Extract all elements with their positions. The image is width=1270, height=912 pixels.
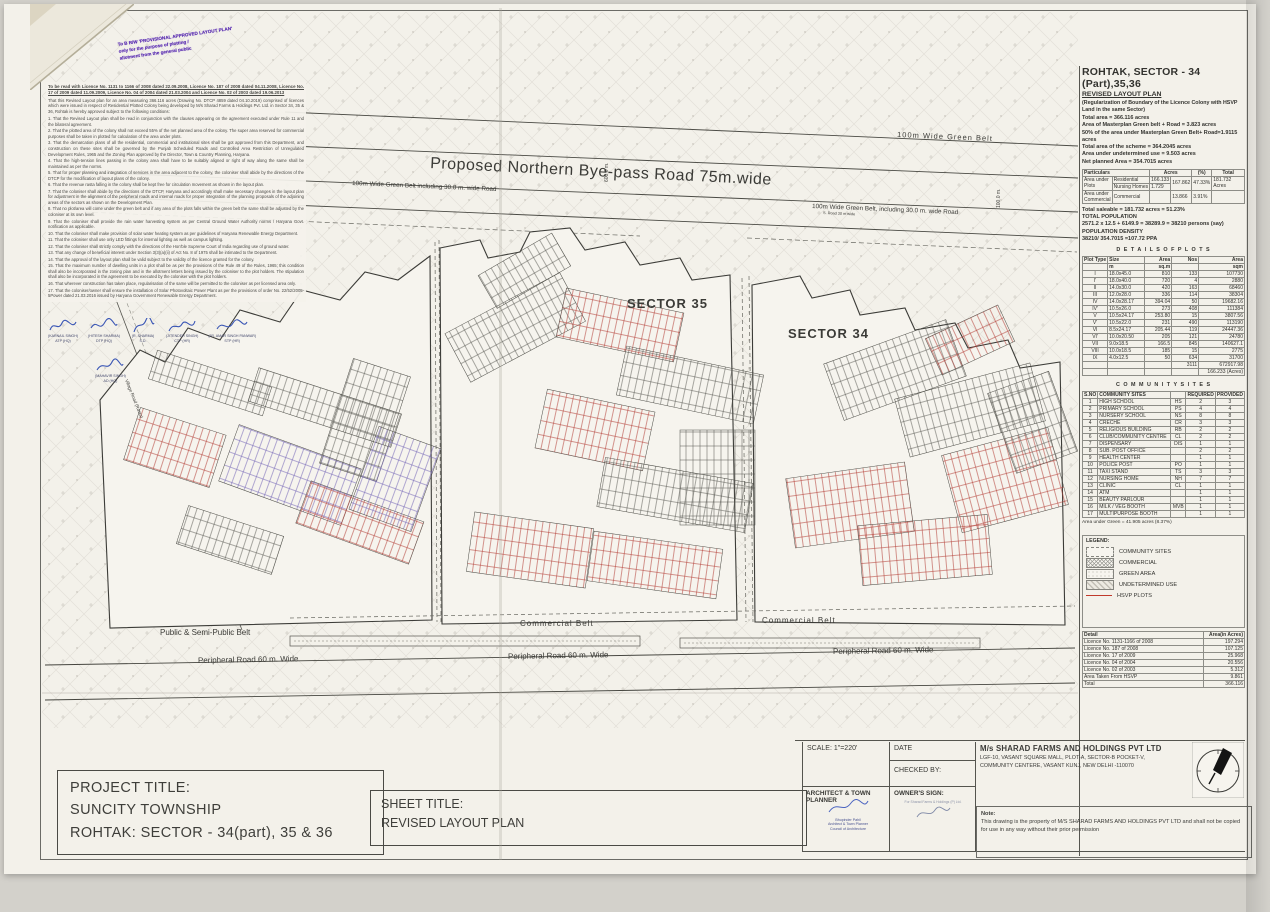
licence-details-table: DetailArea(in Acres) Licence No. 1131-11… bbox=[1082, 631, 1245, 688]
regularization-note: (Regularization of Boundary of the Licen… bbox=[1082, 100, 1245, 113]
checked-by-label: CHECKED BY: bbox=[894, 767, 941, 774]
architect-signature: Bhupinder Pahil Architect & Town Planner… bbox=[812, 798, 884, 832]
signature-block: (KARNAIL SINGH)ATP (HQ) bbox=[48, 318, 78, 343]
list-item: 17. That the coloniser/owner shall ensur… bbox=[48, 288, 304, 299]
commercial-swatch bbox=[1086, 558, 1114, 568]
peripheral-road-label-2: Peripheral Road 60 m. Wide bbox=[508, 650, 609, 661]
table-row: 1HIGH SCHOOLHS23 bbox=[1083, 399, 1245, 406]
peripheral-road-label-1: Peripheral Road 60 m. Wide bbox=[198, 654, 299, 665]
legend-item: COMMUNITY SITES bbox=[1086, 546, 1241, 557]
list-item: 50% of the area under Masterplan Green B… bbox=[1082, 130, 1245, 145]
table-row: 10POLICE POSTPO11 bbox=[1083, 462, 1245, 469]
green-area-note: Area under Green = 41.905 acres (8.37%) bbox=[1082, 520, 1245, 525]
sheet-title-box: SHEET TITLE: REVISED LAYOUT PLAN bbox=[370, 790, 807, 846]
table-row: II14.0x30.042016368460 bbox=[1083, 285, 1245, 292]
titleblock-top-line bbox=[795, 740, 1245, 741]
list-item: Total area of the scheme = 364.2045 acre… bbox=[1082, 144, 1245, 151]
list-item: TOTAL POPULATION bbox=[1082, 214, 1245, 221]
titleblock-hline bbox=[889, 760, 975, 761]
list-item: Net planned Area = 354.7015 acres bbox=[1082, 159, 1245, 166]
list-item: 10. That the coloniser shall make provis… bbox=[48, 231, 304, 237]
legend-box: LEGEND: COMMUNITY SITES COMMERCIAL GREEN… bbox=[1082, 535, 1245, 628]
list-item: 2. That the plotted area of the colony s… bbox=[48, 128, 304, 139]
sector-35-label: SECTOR 35 bbox=[627, 296, 708, 311]
signature-scribble bbox=[95, 358, 125, 374]
list-item: 16. That wherever construction has taken… bbox=[48, 281, 304, 287]
signature-scribble bbox=[215, 318, 249, 334]
company-name: M/s SHARAD FARMS AND HOLDINGS PVT LTD bbox=[980, 744, 1185, 753]
company-block: M/s SHARAD FARMS AND HOLDINGS PVT LTD LG… bbox=[980, 744, 1185, 771]
table-row: I18.0x45.0810133107730 bbox=[1083, 271, 1245, 278]
list-item: 1. That the Revised Layout plan shall be… bbox=[48, 116, 304, 127]
table-row: 17MULTIPURPOSE BOOTH11 bbox=[1083, 511, 1245, 518]
project-title-label: PROJECT TITLE: bbox=[70, 777, 383, 799]
table-row: Total366.116 bbox=[1083, 681, 1245, 688]
table-row: Plot TypeSizeAreaNosArea bbox=[1083, 257, 1245, 264]
plan-subtitle: REVISED LAYOUT PLAN bbox=[1082, 91, 1245, 98]
legend-item: UNDETERMINED USE bbox=[1086, 579, 1241, 590]
table-row: IX4.0x12.55063431700 bbox=[1083, 355, 1245, 362]
table-row: 3111672917.98 bbox=[1083, 362, 1245, 369]
list-item: 11. That the coloniser shall use only LE… bbox=[48, 237, 304, 243]
folded-corner bbox=[30, 4, 134, 90]
table-row: 166.233 (Acres) bbox=[1083, 369, 1245, 376]
table-row: 4CRECHECR33 bbox=[1083, 420, 1245, 427]
statistics-panel: ROHTAK, SECTOR - 34 (Part),35,36 REVISED… bbox=[1082, 66, 1245, 688]
note-text: This drawing is the property of M/S SHAR… bbox=[981, 818, 1247, 834]
table-row: 13CLINICCL11 bbox=[1083, 483, 1245, 490]
scale-label: SCALE: 1"=220' bbox=[807, 745, 857, 752]
table-row: VI'10.0x20.5020512124780 bbox=[1083, 334, 1245, 341]
table-row: Licence No. 1131-1166 of 2008197.294 bbox=[1083, 639, 1245, 646]
panel-divider bbox=[1079, 66, 1080, 856]
table-row: V10.5x24.17253.80153807.56 bbox=[1083, 313, 1245, 320]
table-row: 16MILK / VEG BOOTHMVB11 bbox=[1083, 504, 1245, 511]
dim-100m-label: 100.0 m. bbox=[996, 189, 1002, 208]
list-item: 8. That no plot/area will come under the… bbox=[48, 206, 304, 217]
signature-scribble bbox=[89, 318, 119, 334]
sector-34-label: SECTOR 34 bbox=[788, 326, 869, 341]
date-label: DATE bbox=[894, 745, 912, 752]
table-row: 2PRIMARY SCHOOLPS44 bbox=[1083, 406, 1245, 413]
table-row: msq.msqm bbox=[1083, 264, 1245, 271]
table-row: 6CLUB/COMMUNITY CENTRECL22 bbox=[1083, 434, 1245, 441]
list-item: 14. That the approval of the layout plan… bbox=[48, 257, 304, 263]
copyright-note-box: Note: This drawing is the property of M/… bbox=[976, 806, 1252, 858]
table-row: VIII10.0x18.5185152775 bbox=[1083, 348, 1245, 355]
table-row: Licence No. 02 of 20035.312 bbox=[1083, 667, 1245, 674]
hsvp-plots-swatch bbox=[1086, 595, 1112, 596]
community-sites-swatch bbox=[1086, 547, 1114, 557]
legend-item: HSVP PLOTS bbox=[1086, 590, 1241, 601]
list-item: 6. That the revenue rasta falling in the… bbox=[48, 182, 304, 188]
saleable-population-block: Total saleable = 181.732 acres = 51.23%T… bbox=[1082, 207, 1245, 243]
plan-title: ROHTAK, SECTOR - 34 (Part),35,36 bbox=[1082, 66, 1245, 90]
project-title-line1: SUNCITY TOWNSHIP bbox=[70, 799, 383, 821]
legend-item: COMMERCIAL bbox=[1086, 557, 1241, 568]
list-item: 38210/ 354.7015 =107.72 PPA bbox=[1082, 236, 1245, 243]
table-row: 11TAXI STANDTS33 bbox=[1083, 469, 1245, 476]
table-row: 5RELIGIOUS BUILDINGRB22 bbox=[1083, 427, 1245, 434]
list-item: 3. That the demarcation plans of all the… bbox=[48, 140, 304, 157]
signature-scribble bbox=[913, 804, 953, 822]
details-of-plots-title: D E T A I L S O F P L O T S bbox=[1082, 247, 1245, 253]
area-summary: Total area = 366.116 acresArea of Master… bbox=[1082, 115, 1245, 166]
commercial-belt-label-2: Commercial Belt bbox=[762, 616, 836, 625]
approval-notes-block: To be read with Licence No. 1131 to 1166… bbox=[46, 82, 306, 302]
dim-600m-label: 600.0 m. bbox=[604, 163, 610, 182]
list-item: 2571.2 x 12.5 + 6149.9 = 38289.9 = 38210… bbox=[1082, 221, 1245, 228]
list-item: Area of Masterplan Green belt + Road = 3… bbox=[1082, 122, 1245, 129]
particulars-table: Particulars Acres (%) Total Area under P… bbox=[1082, 169, 1245, 204]
approval-signatures: (KARNAIL SINGH)ATP (HQ) (HITESH SHARMA)D… bbox=[48, 318, 348, 343]
signature-scribble bbox=[130, 318, 156, 334]
company-address: LGF-10, VASANT SQUARE MALL, PLOT-A, SECT… bbox=[980, 755, 1185, 771]
table-row: 3NURSERY SCHOOLNS88 bbox=[1083, 413, 1245, 420]
list-item: 9. That the coloniser shall provide the … bbox=[48, 219, 304, 230]
table-row: VI8.5x24.17205.4411924447.36 bbox=[1083, 327, 1245, 334]
signature-block: (MAHAVIR SINGH)AD (HQ) bbox=[95, 358, 126, 383]
table-row: IV'10.5x26.0273408111384 bbox=[1083, 306, 1245, 313]
conditions-list: 1. That the Revised Layout plan shall be… bbox=[48, 116, 304, 298]
project-title-line2: ROHTAK: SECTOR - 34(part), 35 & 36 bbox=[70, 822, 383, 844]
list-item: Total area = 366.116 acres bbox=[1082, 115, 1245, 122]
details-of-plots-table: Plot TypeSizeAreaNosAreamsq.msqm I18.0x4… bbox=[1082, 256, 1245, 376]
architect-logo bbox=[1192, 742, 1244, 798]
owner-signature: For Sharad Farms & Holdings (P) Ltd. bbox=[898, 800, 968, 824]
scan-edge-shadow bbox=[1246, 0, 1270, 912]
table-row: III12.0x28.033611438304 bbox=[1083, 292, 1245, 299]
list-item: 12. That the coloniser shall strictly co… bbox=[48, 244, 304, 250]
list-item: Area under undetermined use = 9.503 acre… bbox=[1082, 151, 1245, 158]
list-item: Total saleable = 181.732 acres = 51.23% bbox=[1082, 207, 1245, 214]
table-row: IV14.0x28.17394.045019682.16 bbox=[1083, 299, 1245, 306]
signature-block: (HITESH SHARMA)DTP (HQ) bbox=[88, 318, 120, 343]
notes-intro: That this Revised Layout plan for an are… bbox=[48, 98, 304, 115]
list-item: POPULATION DENSITY bbox=[1082, 229, 1245, 236]
public-semi-public-belt-label: Public & Semi-Public Belt bbox=[160, 628, 251, 637]
commercial-belt-label-1: Commercial Belt bbox=[520, 619, 594, 628]
signature-scribble bbox=[48, 318, 78, 334]
signature-block: (R. SHARMA)S.D. bbox=[130, 318, 156, 343]
undetermined-use-swatch bbox=[1086, 580, 1114, 590]
table-row: 7DISPENSARYDIS11 bbox=[1083, 441, 1245, 448]
table-row: DetailArea(in Acres) bbox=[1083, 632, 1245, 639]
table-row: VII9.0x18.5166.5845140627.1 bbox=[1083, 341, 1245, 348]
sheet-title-line1: REVISED LAYOUT PLAN bbox=[381, 814, 806, 833]
owner-sign-label: OWNER'S SIGN: bbox=[894, 790, 944, 797]
project-title-box: PROJECT TITLE: SUNCITY TOWNSHIP ROHTAK: … bbox=[57, 770, 384, 855]
table-row: I'18.0x40.072042880 bbox=[1083, 278, 1245, 285]
signature-block: (JR. AMAR SINGH PANWAR)STP (HR) bbox=[208, 318, 256, 343]
list-item: 7. That the coloniser shall abide by the… bbox=[48, 189, 304, 206]
table-row: 15BEAUTY PARLOUR11 bbox=[1083, 497, 1245, 504]
green-area-swatch bbox=[1086, 569, 1114, 579]
peripheral-road-label-3: Peripheral Road 60 m. Wide bbox=[833, 645, 934, 656]
table-row: Licence No. 04 of 200420.556 bbox=[1083, 660, 1245, 667]
titleblock-vline bbox=[889, 742, 890, 852]
table-row: Licence No. 17 of 200925.968 bbox=[1083, 653, 1245, 660]
community-sites-title: C O M M U N I T Y S I T E S bbox=[1082, 382, 1245, 388]
list-item: 5. That for proper planning and integrat… bbox=[48, 170, 304, 181]
community-sites-table: S.NOCOMMUNITY SITESREQUIREDPROVIDED 1HIG… bbox=[1082, 391, 1245, 518]
list-item: 13. That any change of beneficial intere… bbox=[48, 250, 304, 256]
fold-crease-vertical bbox=[499, 8, 502, 860]
signature-scribble bbox=[825, 798, 871, 816]
table-row: 12NURSING HOMENH77 bbox=[1083, 476, 1245, 483]
legend-title: LEGEND: bbox=[1086, 538, 1241, 544]
list-item: 15. That the maximum number of dwelling … bbox=[48, 263, 304, 280]
signature-scribble bbox=[167, 318, 197, 334]
table-row: 8SUB. POST OFFICE22 bbox=[1083, 448, 1245, 455]
table-row: S.NOCOMMUNITY SITESREQUIREDPROVIDED bbox=[1083, 392, 1245, 399]
table-row: 9HEALTH CENTER11 bbox=[1083, 455, 1245, 462]
note-label: Note: bbox=[981, 810, 1247, 818]
table-row: Licence No. 187 of 2008107.125 bbox=[1083, 646, 1245, 653]
fold-crease-horizontal bbox=[42, 692, 1078, 694]
table-row: 14ATM11 bbox=[1083, 490, 1245, 497]
titleblock-hline bbox=[802, 786, 975, 787]
scanned-layout-plan-sheet: { "stamp": { "line1": "To B R/W 'PROVISI… bbox=[0, 0, 1270, 912]
list-item: 4. That the high-tension lines passing i… bbox=[48, 158, 304, 169]
table-row: Area Taken From HSVP9.861 bbox=[1083, 674, 1245, 681]
table-row: V'10.5x22.0231490113190 bbox=[1083, 320, 1245, 327]
signature-block: (JITENDER SINGH)CTP (HR) bbox=[166, 318, 198, 343]
legend-item: GREEN AREA bbox=[1086, 568, 1241, 579]
sheet-title-label: SHEET TITLE: bbox=[381, 795, 806, 814]
